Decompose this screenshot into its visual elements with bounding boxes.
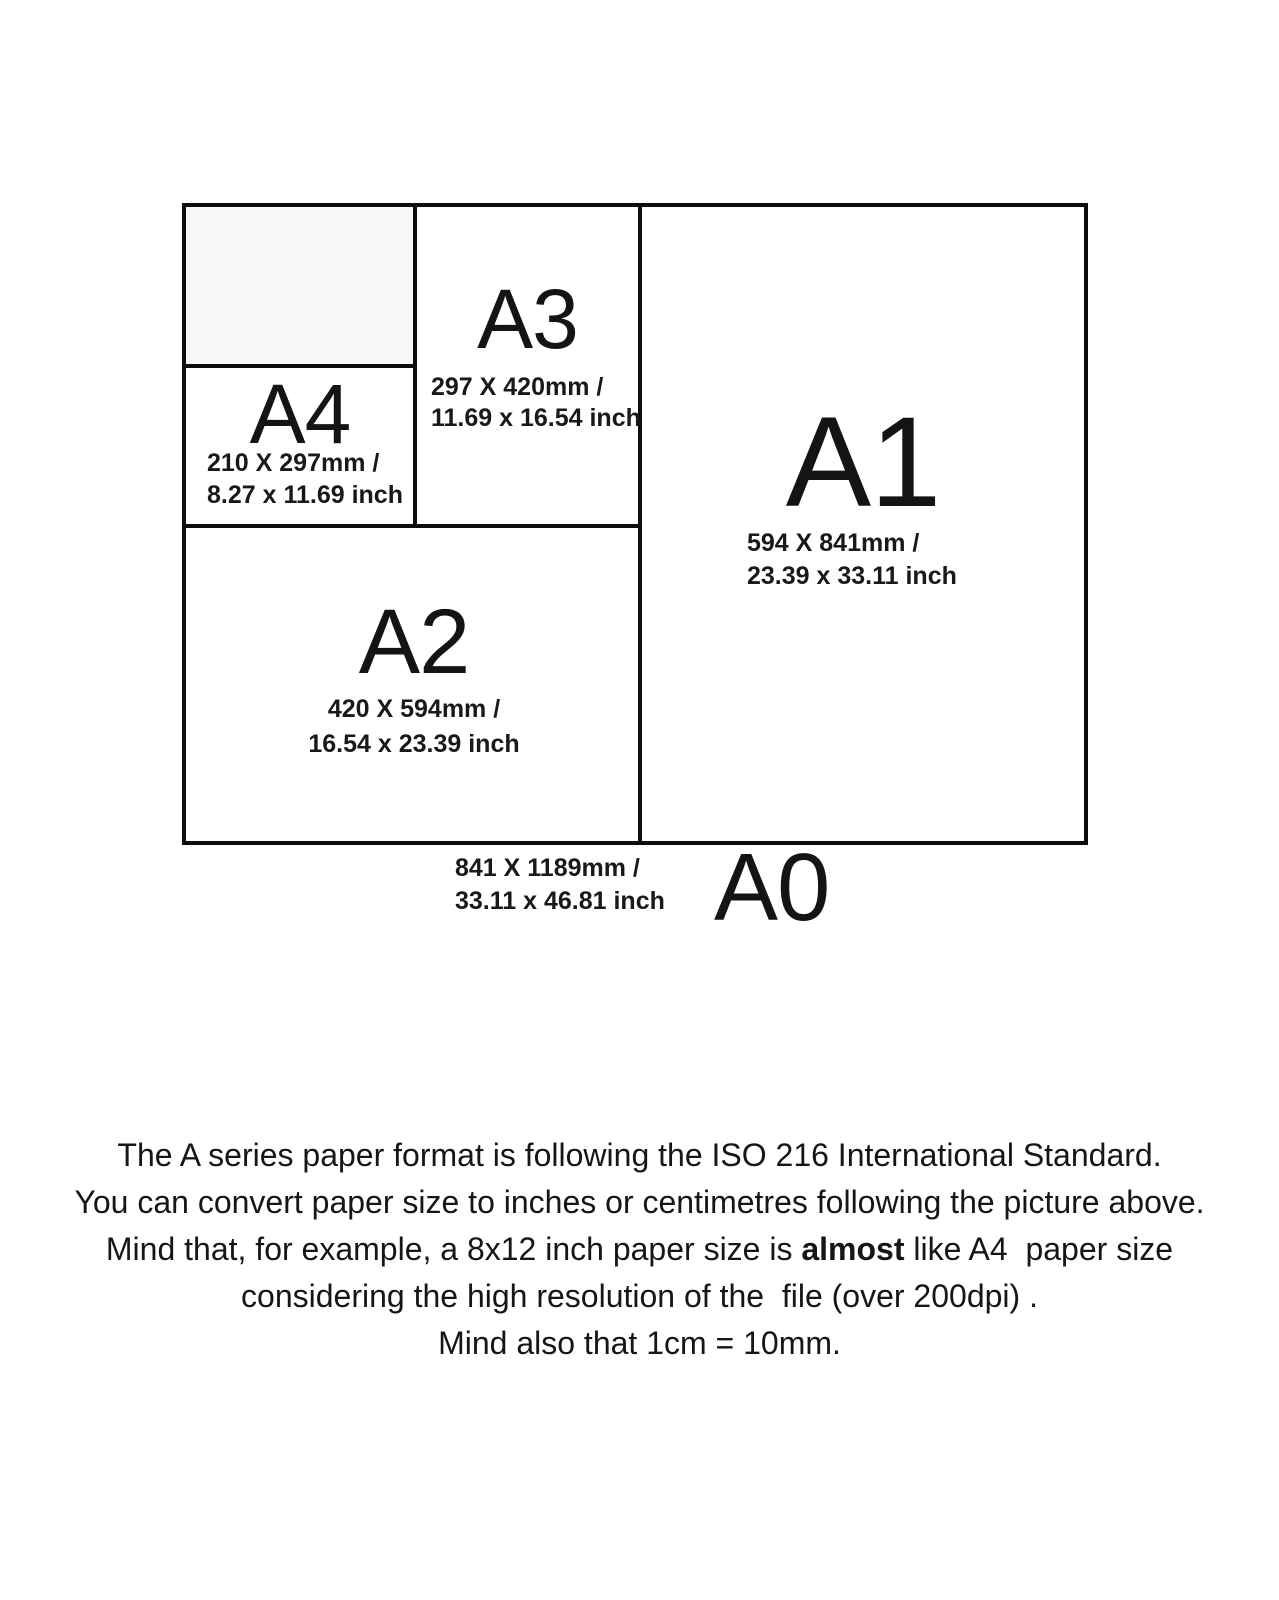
a0-dimensions-inch: 33.11 x 46.81 inch — [455, 885, 665, 918]
caption-line-1: The A series paper format is following t… — [0, 1132, 1279, 1179]
a5-box — [186, 207, 413, 364]
a0-dimensions: 841 X 1189mm / 33.11 x 46.81 inch — [455, 852, 665, 918]
a4-dimensions-mm: 210 X 297mm / — [207, 447, 403, 479]
a3-dimensions-mm: 297 X 420mm / — [431, 372, 641, 403]
a2-label: A2 — [186, 596, 642, 688]
a2-dimensions: 420 X 594mm / 16.54 x 23.39 inch — [186, 692, 642, 762]
a1-label: A1 — [642, 399, 1084, 527]
caption-line-3: Mind that, for example, a 8x12 inch pape… — [0, 1226, 1279, 1273]
a0-label: A0 — [714, 840, 829, 936]
a2-dimensions-inch: 16.54 x 23.39 inch — [186, 727, 642, 762]
a4-dimensions: 210 X 297mm / 8.27 x 11.69 inch — [207, 447, 403, 511]
a4-dimensions-inch: 8.27 x 11.69 inch — [207, 479, 403, 511]
caption-line-3-before: Mind that, for example, a 8x12 inch pape… — [106, 1231, 801, 1267]
a3-label: A3 — [417, 277, 638, 361]
caption-line-4: considering the high resolution of the f… — [0, 1273, 1279, 1320]
caption-line-3-bold: almost — [801, 1231, 904, 1267]
footer-caption: The A series paper format is following t… — [0, 1132, 1279, 1367]
a2-dimensions-mm: 420 X 594mm / — [186, 692, 642, 727]
caption-line-5: Mind also that 1cm = 10mm. — [0, 1320, 1279, 1367]
a3-dimensions: 297 X 420mm / 11.69 x 16.54 inch — [431, 372, 641, 434]
a1-dimensions: 594 X 841mm / 23.39 x 33.11 inch — [747, 527, 957, 593]
caption-line-2: You can convert paper size to inches or … — [0, 1179, 1279, 1226]
a0-dimensions-mm: 841 X 1189mm / — [455, 852, 665, 885]
a3-dimensions-inch: 11.69 x 16.54 inch — [431, 403, 641, 434]
divider-a2-top — [186, 524, 642, 528]
a1-dimensions-inch: 23.39 x 33.11 inch — [747, 560, 957, 593]
a1-dimensions-mm: 594 X 841mm / — [747, 527, 957, 560]
caption-line-3-after: like A4 paper size — [905, 1231, 1174, 1267]
a4-label: A4 — [186, 372, 414, 456]
paper-size-diagram: A3 297 X 420mm / 11.69 x 16.54 inch A4 2… — [182, 203, 1088, 845]
